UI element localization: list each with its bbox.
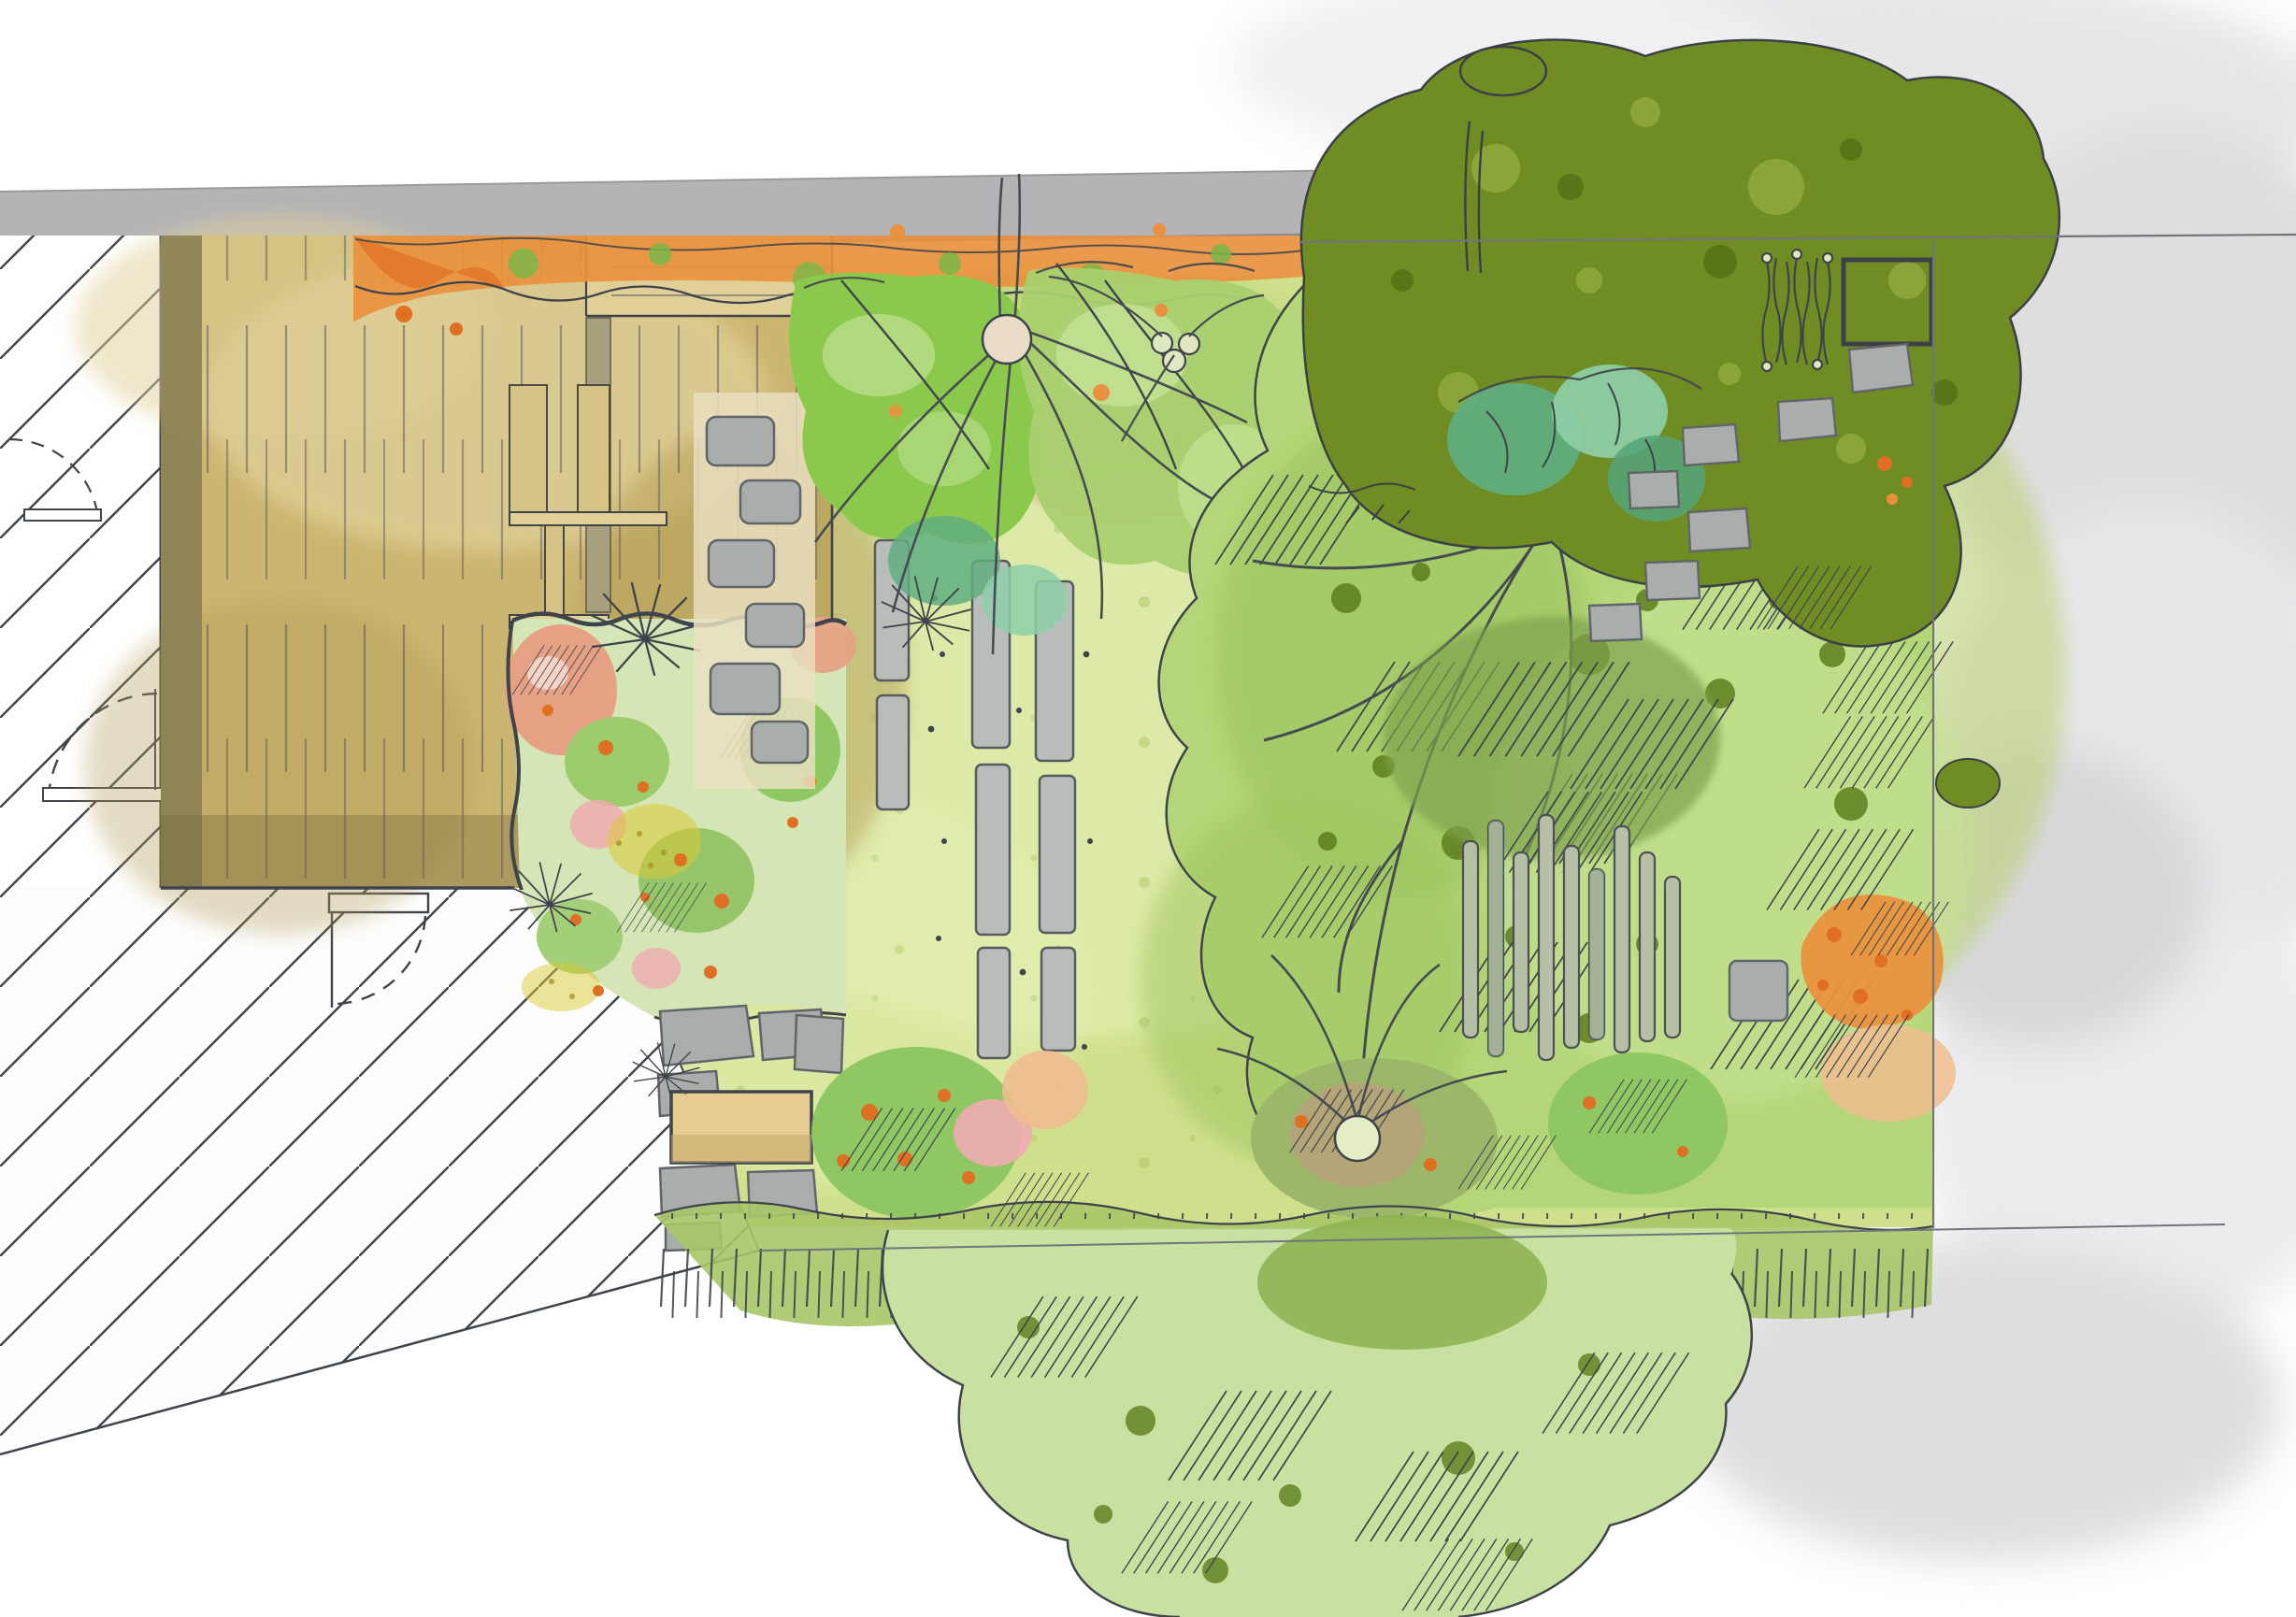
garden-plan-page xyxy=(0,0,2296,1617)
stepping-stone-path xyxy=(694,393,815,789)
garden-plan-canvas xyxy=(0,0,2296,1617)
